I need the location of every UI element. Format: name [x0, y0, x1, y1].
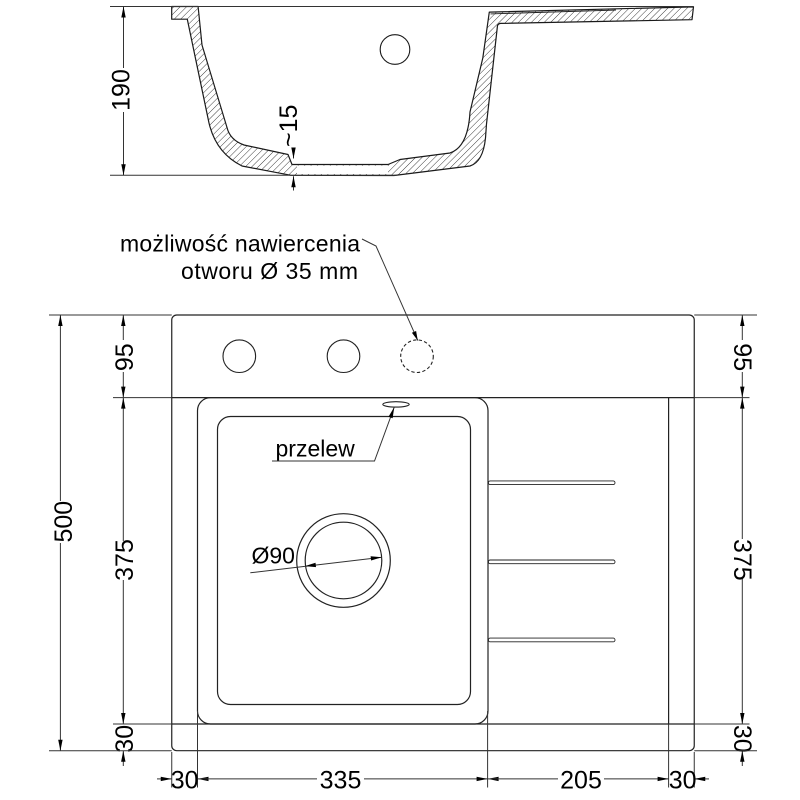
svg-text:190: 190: [108, 69, 136, 111]
svg-text:możliwość nawiercenia: możliwość nawiercenia: [120, 231, 360, 257]
svg-text:95: 95: [728, 343, 756, 371]
svg-text:30: 30: [171, 767, 199, 795]
svg-text:30: 30: [669, 767, 697, 795]
svg-text:30: 30: [111, 725, 139, 753]
svg-text:205: 205: [560, 767, 602, 795]
svg-text:500: 500: [50, 501, 78, 543]
svg-text:Ø90: Ø90: [252, 543, 295, 569]
svg-text:30: 30: [728, 725, 756, 753]
svg-text:~15: ~15: [275, 105, 303, 147]
svg-text:375: 375: [728, 539, 756, 581]
svg-text:otworu Ø 35 mm: otworu Ø 35 mm: [181, 258, 358, 284]
svg-text:375: 375: [111, 539, 139, 581]
svg-text:przelew: przelew: [276, 435, 356, 461]
svg-text:95: 95: [111, 343, 139, 371]
svg-text:335: 335: [320, 767, 362, 795]
